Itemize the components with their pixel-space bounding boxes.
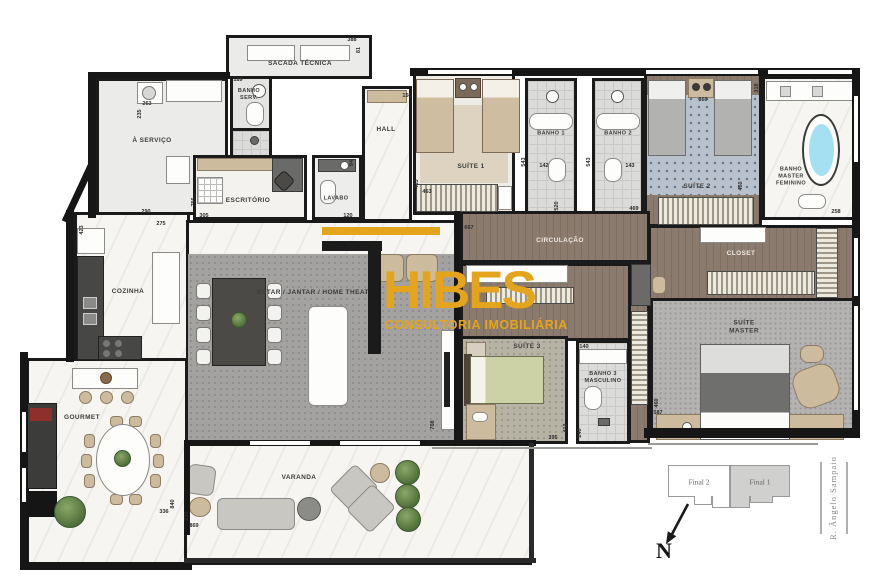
room-label: SUÍTE MASTER [729, 320, 759, 337]
window [854, 96, 858, 162]
coffee-machine [30, 408, 52, 421]
toilet [604, 158, 622, 182]
vanity [579, 349, 627, 364]
dining-chair [196, 283, 211, 299]
street-label: R. Ângelo Sampaio [828, 456, 838, 540]
dining-chair [267, 305, 282, 321]
keyplan-label-final1: Final 1 [749, 478, 770, 487]
desk-chair [652, 276, 666, 294]
fridge-cabinets [152, 252, 180, 324]
lamp [692, 83, 700, 91]
toilet [584, 386, 602, 410]
dimension-label: 140 [579, 344, 588, 350]
island-sink [100, 372, 112, 384]
dimension-label: 667 [464, 225, 473, 231]
dimension-label: 388 [347, 37, 356, 43]
dimension-label: 142 [539, 163, 548, 169]
table-centerpiece-plant [231, 312, 247, 328]
ledge-line [648, 443, 818, 445]
dining-chair [153, 454, 164, 468]
toilet [246, 102, 264, 126]
dining-chair [196, 327, 211, 343]
basin [472, 412, 488, 422]
balcony-parapet [529, 443, 534, 563]
dimension-label: 460 [738, 181, 744, 190]
plant [395, 460, 420, 485]
dresser [498, 186, 512, 210]
dresser [466, 404, 496, 440]
dimension-label: 423 [79, 225, 85, 234]
single-bed [470, 356, 544, 404]
sink [546, 90, 559, 103]
dining-chair [84, 474, 95, 488]
wardrobe-column [816, 228, 838, 298]
dimension-label: 189 [233, 77, 242, 83]
dimension-label: 94 [349, 160, 355, 166]
round-table [297, 497, 321, 521]
wall-segment [644, 428, 860, 438]
side-table [189, 497, 211, 517]
dimension-label: 150 [402, 93, 411, 99]
bathtub [529, 113, 573, 130]
watermark-tagline: CONSULTORIA IMOBILIÁRIA [385, 318, 568, 332]
window [768, 70, 852, 74]
single-bed [714, 80, 752, 156]
room-label: HALL [377, 126, 396, 134]
balcony-parapet [184, 558, 536, 563]
room-hall [362, 86, 412, 222]
dimension-label: 469 [629, 206, 638, 212]
keyplan-step [712, 496, 730, 508]
burner [103, 340, 110, 347]
lamp [703, 83, 711, 91]
dining-chair [267, 349, 282, 365]
equipment-box [247, 45, 295, 61]
room-label: COZINHA [112, 288, 144, 296]
lamp [470, 83, 478, 91]
room-label: BANHO 2 [604, 130, 632, 137]
dimension-label: 433 [414, 179, 420, 188]
dining-chair [129, 494, 142, 505]
burner [115, 350, 122, 357]
room-label: SUÍTE 1 [457, 163, 484, 171]
room-label: SUÍTE 2 [683, 183, 710, 191]
shower-head [598, 418, 610, 426]
tub-basin [142, 86, 156, 100]
storage-grid [197, 177, 223, 204]
sliding-door [340, 441, 420, 445]
basin [812, 86, 823, 97]
sofa [308, 306, 348, 406]
dimension-label: 275 [156, 221, 165, 227]
dining-chair [196, 305, 211, 321]
keyplan-label-final2: Final 2 [688, 478, 709, 487]
dimension-label: 413 [563, 423, 569, 432]
dimension-label: 305 [199, 213, 208, 219]
dimension-label: 840 [170, 499, 176, 508]
bathtub-water [809, 124, 834, 176]
service-counter [166, 80, 222, 102]
dining-chair [81, 454, 92, 468]
room-label: BANHO SERV. [238, 88, 260, 102]
dimension-label: 520 [554, 201, 560, 210]
basin [340, 161, 349, 170]
watermark-t-mark [368, 241, 381, 354]
dimension-label: 336 [159, 509, 168, 515]
toilet [798, 194, 826, 209]
wall-segment [20, 352, 28, 568]
dimension-label: 143 [625, 163, 634, 169]
dimension-label: 708 [430, 420, 436, 429]
hall-console [367, 90, 407, 103]
stool [100, 391, 113, 404]
wall-segment [88, 72, 96, 218]
pouf [800, 345, 824, 363]
room-label: GOURMET [64, 414, 100, 422]
room-label: SUÍTE 3 [513, 343, 540, 351]
wall-segment [20, 562, 192, 570]
wall-segment [88, 72, 230, 78]
dimension-label: 120 [343, 213, 352, 219]
window [22, 468, 26, 502]
keyplan-step [750, 496, 773, 503]
window [854, 306, 858, 410]
plant [395, 484, 420, 509]
window [428, 70, 512, 74]
single-bed [416, 79, 454, 153]
room-label: BANHO MASTER FEMININO [776, 166, 806, 187]
room-label: BANHO 3 MASCULINO [585, 371, 622, 385]
room-label: SACADA TÉCNICA [268, 60, 332, 68]
room-label: BANHO 1 [537, 130, 565, 137]
lamp [459, 83, 467, 91]
dimension-label: 756 [191, 197, 197, 206]
wine-cellar [27, 491, 57, 517]
dimension-label: 210 [184, 511, 190, 520]
single-bed [648, 80, 686, 156]
equipment-box [300, 45, 350, 61]
plant [396, 507, 421, 532]
watermark-brand: HIBES [383, 264, 535, 317]
closet-island [700, 227, 766, 243]
dimension-label: 290 [141, 209, 150, 215]
wall-segment [184, 443, 190, 535]
window [22, 412, 26, 452]
dimension-label: 258 [831, 209, 840, 215]
dimension-label: 81 [356, 47, 362, 53]
sink-basin [83, 313, 97, 325]
bathtub [596, 113, 640, 130]
sink [611, 90, 624, 103]
dining-chair [267, 327, 282, 343]
street-line [820, 462, 822, 534]
dimension-label: 360 [698, 97, 707, 103]
window [854, 238, 858, 296]
room-label: VARANDA [282, 474, 317, 482]
dimension-label: 263 [142, 101, 151, 107]
dimension-label: 460 [654, 398, 660, 407]
washing-machine [166, 156, 190, 184]
room-label: À SERVIÇO [132, 137, 171, 145]
double-bed [700, 344, 790, 440]
room-label: CLOSET [727, 250, 756, 258]
wardrobe [658, 197, 754, 225]
room-label: LAVABO [324, 195, 349, 202]
dimension-label: 235 [137, 109, 143, 118]
room-label: CIRCULAÇÃO [536, 237, 584, 245]
dimension-label: 395 [548, 435, 557, 441]
tv [444, 352, 450, 407]
dining-chair [196, 349, 211, 365]
shower-drain [250, 136, 259, 145]
dimension-label: 869 [189, 523, 198, 529]
stool [121, 391, 134, 404]
sliding-door [250, 441, 310, 445]
window [646, 70, 758, 74]
single-bed [482, 79, 520, 153]
keyplan-step [730, 496, 750, 508]
plant [54, 496, 86, 528]
desk [631, 264, 651, 306]
room-label: ESCRITÓRIO [226, 197, 270, 205]
dining-chair [150, 474, 161, 488]
room-label: ESTAR / JANTAR / HOME THEATER [257, 289, 378, 297]
table-centerpiece-plant [114, 450, 131, 467]
dimension-label: 240 [577, 428, 583, 437]
dining-chair [150, 434, 161, 448]
dimension-label: 587 [653, 410, 662, 416]
sink-basin [83, 297, 97, 309]
floor-plan: SACADA TÉCNICA À SERVIÇO BANHO SERV. ESC… [0, 0, 870, 585]
wardrobe-long [707, 271, 815, 295]
wall-segment [66, 210, 74, 362]
dimension-label: 543 [586, 157, 592, 166]
ledge-line [432, 447, 652, 449]
wardrobe-column [631, 311, 648, 405]
dining-chair [84, 434, 95, 448]
north-label: N [656, 538, 672, 564]
dimension-label: 318 [754, 83, 760, 92]
pouf [370, 463, 390, 483]
toilet [548, 158, 566, 182]
outdoor-sofa [217, 498, 295, 530]
basin [780, 86, 791, 97]
burner [115, 340, 122, 347]
dimension-label: 543 [521, 157, 527, 166]
watermark-gold-bar [322, 227, 440, 235]
stool [79, 391, 92, 404]
burner [103, 350, 110, 357]
street-line [846, 462, 848, 534]
dimension-label: 463 [422, 189, 431, 195]
